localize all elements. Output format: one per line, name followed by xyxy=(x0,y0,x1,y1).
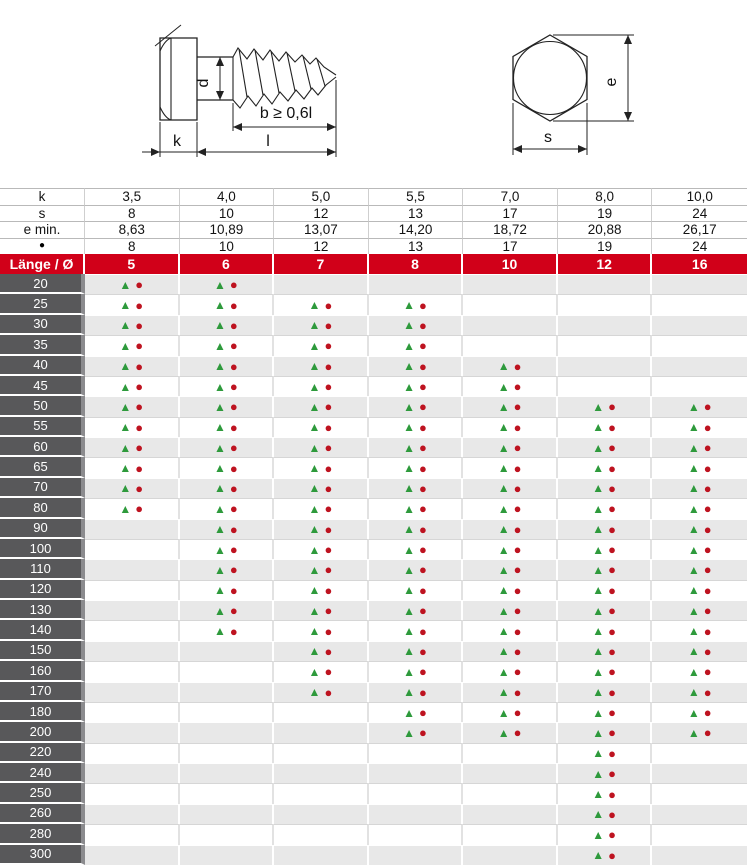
availability-cell xyxy=(85,824,180,844)
availability-cell: ▲● xyxy=(558,702,653,722)
availability-triangle-marker: ▲ xyxy=(119,503,131,515)
length-row: 240▲● xyxy=(0,763,747,783)
availability-circle-marker: ● xyxy=(608,584,616,597)
diameter-label-cell: Länge / Ø xyxy=(0,254,85,274)
availability-circle-marker: ● xyxy=(608,625,616,638)
availability-triangle-marker: ▲ xyxy=(592,788,604,800)
availability-triangle-marker: ▲ xyxy=(498,482,510,494)
availability-cell: ▲● xyxy=(274,315,369,335)
availability-cell xyxy=(180,641,275,661)
availability-cell: ▲● xyxy=(274,641,369,661)
availability-cell: ▲● xyxy=(180,519,275,539)
availability-circle-marker: ● xyxy=(230,625,238,638)
availability-circle-marker: ● xyxy=(608,563,616,576)
availability-cell: ▲● xyxy=(463,396,558,416)
availability-circle-marker: ● xyxy=(324,543,332,556)
availability-cell: ▲● xyxy=(463,519,558,539)
availability-circle-marker: ● xyxy=(608,747,616,760)
availability-cell xyxy=(85,743,180,763)
length-label-cell: 45 xyxy=(0,376,85,396)
header-value-cell: 10,0 xyxy=(652,188,747,205)
availability-circle-marker: ● xyxy=(419,726,427,739)
availability-circle-marker: ● xyxy=(419,706,427,719)
availability-cell: ▲● xyxy=(652,437,747,457)
availability-triangle-marker: ▲ xyxy=(592,482,604,494)
availability-cell: ▲● xyxy=(369,417,464,437)
availability-triangle-marker: ▲ xyxy=(214,482,226,494)
availability-circle-marker: ● xyxy=(135,339,143,352)
availability-cell: ▲● xyxy=(652,722,747,742)
availability-cell xyxy=(85,722,180,742)
availability-cell: ▲● xyxy=(85,457,180,477)
availability-circle-marker: ● xyxy=(514,706,522,719)
availability-circle-marker: ● xyxy=(135,400,143,413)
diameter-value-cell: 10 xyxy=(463,254,558,274)
availability-cell: ▲● xyxy=(463,498,558,518)
availability-cell xyxy=(463,763,558,783)
availability-circle-marker: ● xyxy=(324,502,332,515)
availability-triangle-marker: ▲ xyxy=(592,645,604,657)
availability-cell: ▲● xyxy=(558,641,653,661)
length-label-cell: 130 xyxy=(0,600,85,620)
availability-cell: ▲● xyxy=(558,763,653,783)
availability-circle-marker: ● xyxy=(704,421,712,434)
availability-circle-marker: ● xyxy=(324,686,332,699)
length-label-cell: 110 xyxy=(0,559,85,579)
availability-cell: ▲● xyxy=(274,539,369,559)
availability-circle-marker: ● xyxy=(704,441,712,454)
availability-cell: ▲● xyxy=(180,376,275,396)
availability-circle-marker: ● xyxy=(514,502,522,515)
availability-cell: ▲● xyxy=(369,682,464,702)
header-row: s8101213171924 xyxy=(0,205,747,222)
availability-triangle-marker: ▲ xyxy=(403,625,415,637)
screw-thread xyxy=(233,48,336,108)
availability-circle-marker: ● xyxy=(324,645,332,658)
availability-cell xyxy=(180,824,275,844)
availability-cell: ▲● xyxy=(274,417,369,437)
availability-triangle-marker: ▲ xyxy=(214,625,226,637)
availability-triangle-marker: ▲ xyxy=(309,482,321,494)
availability-circle-marker: ● xyxy=(419,584,427,597)
header-value-cell: 17 xyxy=(463,238,558,255)
availability-cell: ▲● xyxy=(558,580,653,600)
availability-circle-marker: ● xyxy=(419,421,427,434)
availability-circle-marker: ● xyxy=(419,360,427,373)
availability-circle-marker: ● xyxy=(514,625,522,638)
availability-triangle-marker: ▲ xyxy=(592,421,604,433)
availability-circle-marker: ● xyxy=(704,604,712,617)
availability-circle-marker: ● xyxy=(419,645,427,658)
availability-circle-marker: ● xyxy=(514,543,522,556)
length-row: 170▲●▲●▲●▲●▲● xyxy=(0,682,747,702)
availability-cell: ▲● xyxy=(180,620,275,640)
availability-cell: ▲● xyxy=(558,600,653,620)
length-row: 90▲●▲●▲●▲●▲●▲● xyxy=(0,519,747,539)
availability-cell xyxy=(652,294,747,314)
availability-circle-marker: ● xyxy=(324,339,332,352)
availability-triangle-marker: ▲ xyxy=(119,340,131,352)
length-row: 20▲●▲● xyxy=(0,274,747,294)
availability-circle-marker: ● xyxy=(608,808,616,821)
availability-circle-marker: ● xyxy=(135,462,143,475)
availability-circle-marker: ● xyxy=(230,319,238,332)
availability-cell: ▲● xyxy=(463,580,558,600)
length-label-cell: 250 xyxy=(0,783,85,803)
header-value-cell: 10 xyxy=(180,238,275,255)
availability-circle-marker: ● xyxy=(230,523,238,536)
availability-cell xyxy=(558,294,653,314)
availability-triangle-marker: ▲ xyxy=(403,503,415,515)
availability-cell: ▲● xyxy=(369,702,464,722)
dimension-lines-right xyxy=(513,35,634,155)
availability-cell xyxy=(652,783,747,803)
diameter-value-cell: 5 xyxy=(85,254,180,274)
availability-circle-marker: ● xyxy=(514,645,522,658)
availability-cell: ▲● xyxy=(652,417,747,437)
availability-triangle-marker: ▲ xyxy=(214,421,226,433)
availability-circle-marker: ● xyxy=(324,360,332,373)
availability-cell xyxy=(652,845,747,865)
availability-triangle-marker: ▲ xyxy=(119,401,131,413)
header-value-cell: 12 xyxy=(274,238,369,255)
availability-cell xyxy=(369,845,464,865)
availability-cell xyxy=(85,580,180,600)
length-row: 80▲●▲●▲●▲●▲●▲●▲● xyxy=(0,498,747,518)
availability-triangle-marker: ▲ xyxy=(498,442,510,454)
availability-circle-marker: ● xyxy=(514,400,522,413)
availability-cell: ▲● xyxy=(463,539,558,559)
length-label-cell: 50 xyxy=(0,396,85,416)
availability-cell xyxy=(274,702,369,722)
availability-triangle-marker: ▲ xyxy=(688,584,700,596)
availability-cell xyxy=(85,661,180,681)
availability-triangle-marker: ▲ xyxy=(309,584,321,596)
availability-circle-marker: ● xyxy=(230,299,238,312)
availability-triangle-marker: ▲ xyxy=(403,564,415,576)
availability-triangle-marker: ▲ xyxy=(688,462,700,474)
availability-cell: ▲● xyxy=(85,417,180,437)
availability-cell: ▲● xyxy=(558,722,653,742)
diameter-value-cell: 8 xyxy=(369,254,464,274)
availability-triangle-marker: ▲ xyxy=(498,421,510,433)
availability-triangle-marker: ▲ xyxy=(214,401,226,413)
length-label-cell: 60 xyxy=(0,437,85,457)
header-row: k3,54,05,05,57,08,010,0 xyxy=(0,188,747,205)
availability-circle-marker: ● xyxy=(608,543,616,556)
availability-circle-marker: ● xyxy=(608,421,616,434)
availability-circle-marker: ● xyxy=(608,706,616,719)
diameter-header-row: Länge / Ø5678101216 xyxy=(0,254,747,274)
availability-circle-marker: ● xyxy=(230,502,238,515)
availability-cell xyxy=(85,519,180,539)
availability-circle-marker: ● xyxy=(324,665,332,678)
length-row: 160▲●▲●▲●▲●▲● xyxy=(0,661,747,681)
availability-circle-marker: ● xyxy=(704,400,712,413)
availability-cell xyxy=(558,356,653,376)
availability-circle-marker: ● xyxy=(704,726,712,739)
availability-triangle-marker: ▲ xyxy=(498,727,510,739)
availability-triangle-marker: ▲ xyxy=(688,564,700,576)
diameter-value-cell: 6 xyxy=(180,254,275,274)
availability-triangle-marker: ▲ xyxy=(688,727,700,739)
length-label-cell: 55 xyxy=(0,417,85,437)
length-row: 250▲● xyxy=(0,783,747,803)
availability-circle-marker: ● xyxy=(324,319,332,332)
availability-triangle-marker: ▲ xyxy=(688,625,700,637)
length-row: 280▲● xyxy=(0,824,747,844)
availability-cell: ▲● xyxy=(180,294,275,314)
availability-cell xyxy=(463,845,558,865)
availability-circle-marker: ● xyxy=(230,604,238,617)
availability-circle-marker: ● xyxy=(419,400,427,413)
availability-triangle-marker: ▲ xyxy=(119,319,131,331)
length-row: 60▲●▲●▲●▲●▲●▲●▲● xyxy=(0,437,747,457)
availability-cell xyxy=(369,763,464,783)
availability-triangle-marker: ▲ xyxy=(592,829,604,841)
availability-circle-marker: ● xyxy=(135,380,143,393)
length-row: 35▲●▲●▲●▲● xyxy=(0,335,747,355)
availability-triangle-marker: ▲ xyxy=(688,401,700,413)
screw-shank xyxy=(197,57,233,100)
availability-cell: ▲● xyxy=(652,702,747,722)
availability-circle-marker: ● xyxy=(514,482,522,495)
availability-triangle-marker: ▲ xyxy=(688,605,700,617)
availability-cell: ▲● xyxy=(180,580,275,600)
header-value-cell: 19 xyxy=(558,238,653,255)
availability-cell: ▲● xyxy=(369,356,464,376)
availability-triangle-marker: ▲ xyxy=(309,442,321,454)
availability-circle-marker: ● xyxy=(608,665,616,678)
availability-cell: ▲● xyxy=(274,396,369,416)
length-row: 130▲●▲●▲●▲●▲●▲● xyxy=(0,600,747,620)
availability-cell xyxy=(274,845,369,865)
availability-cell xyxy=(652,743,747,763)
availability-cell: ▲● xyxy=(85,437,180,457)
availability-cell xyxy=(85,845,180,865)
availability-circle-marker: ● xyxy=(704,502,712,515)
availability-cell xyxy=(558,335,653,355)
dim-label-s: s xyxy=(544,129,552,146)
availability-cell: ▲● xyxy=(369,294,464,314)
availability-triangle-marker: ▲ xyxy=(214,564,226,576)
availability-cell xyxy=(85,763,180,783)
availability-cell xyxy=(652,763,747,783)
screw-side-view: d b ≥ 0,6l k l xyxy=(142,25,336,157)
screw-dimension-diagram: d b ≥ 0,6l k l e s xyxy=(0,0,747,188)
availability-cell xyxy=(85,600,180,620)
availability-cell: ▲● xyxy=(85,274,180,294)
availability-cell: ▲● xyxy=(463,722,558,742)
availability-triangle-marker: ▲ xyxy=(498,401,510,413)
availability-cell xyxy=(652,335,747,355)
availability-circle-marker: ● xyxy=(324,584,332,597)
length-row: 70▲●▲●▲●▲●▲●▲●▲● xyxy=(0,478,747,498)
availability-cell: ▲● xyxy=(85,335,180,355)
availability-cell: ▲● xyxy=(652,641,747,661)
availability-cell xyxy=(85,783,180,803)
availability-cell: ▲● xyxy=(274,376,369,396)
availability-cell: ▲● xyxy=(558,519,653,539)
availability-cell: ▲● xyxy=(369,315,464,335)
availability-circle-marker: ● xyxy=(324,441,332,454)
availability-triangle-marker: ▲ xyxy=(309,421,321,433)
length-row: 120▲●▲●▲●▲●▲●▲● xyxy=(0,580,747,600)
availability-cell xyxy=(85,804,180,824)
availability-cell xyxy=(652,356,747,376)
availability-cell: ▲● xyxy=(652,457,747,477)
availability-cell: ▲● xyxy=(463,559,558,579)
availability-circle-marker: ● xyxy=(514,686,522,699)
length-row: 25▲●▲●▲●▲● xyxy=(0,294,747,314)
availability-circle-marker: ● xyxy=(419,339,427,352)
availability-triangle-marker: ▲ xyxy=(309,360,321,372)
availability-circle-marker: ● xyxy=(419,482,427,495)
availability-cell: ▲● xyxy=(180,437,275,457)
availability-circle-marker: ● xyxy=(230,278,238,291)
availability-triangle-marker: ▲ xyxy=(214,523,226,535)
availability-cell: ▲● xyxy=(274,620,369,640)
length-label-cell: 35 xyxy=(0,335,85,355)
availability-triangle-marker: ▲ xyxy=(309,340,321,352)
availability-cell xyxy=(652,376,747,396)
length-label-cell: 240 xyxy=(0,763,85,783)
availability-triangle-marker: ▲ xyxy=(498,686,510,698)
availability-triangle-marker: ▲ xyxy=(403,605,415,617)
availability-cell: ▲● xyxy=(369,539,464,559)
availability-triangle-marker: ▲ xyxy=(309,299,321,311)
header-value-cell: 13 xyxy=(369,238,464,255)
availability-cell: ▲● xyxy=(463,478,558,498)
availability-cell xyxy=(463,743,558,763)
availability-circle-marker: ● xyxy=(608,604,616,617)
availability-cell: ▲● xyxy=(274,356,369,376)
technical-drawing: d b ≥ 0,6l k l e s xyxy=(0,0,747,188)
availability-cell xyxy=(369,804,464,824)
length-label-cell: 170 xyxy=(0,682,85,702)
availability-cell: ▲● xyxy=(652,580,747,600)
availability-cell xyxy=(463,294,558,314)
availability-triangle-marker: ▲ xyxy=(498,544,510,556)
availability-cell xyxy=(180,722,275,742)
availability-triangle-marker: ▲ xyxy=(688,482,700,494)
availability-cell: ▲● xyxy=(463,437,558,457)
availability-circle-marker: ● xyxy=(608,726,616,739)
availability-triangle-marker: ▲ xyxy=(592,686,604,698)
availability-cell xyxy=(85,641,180,661)
availability-triangle-marker: ▲ xyxy=(592,808,604,820)
availability-cell: ▲● xyxy=(274,478,369,498)
availability-cell: ▲● xyxy=(180,539,275,559)
availability-cell: ▲● xyxy=(369,641,464,661)
availability-cell: ▲● xyxy=(369,437,464,457)
availability-triangle-marker: ▲ xyxy=(592,727,604,739)
availability-circle-marker: ● xyxy=(324,523,332,536)
length-row: 40▲●▲●▲●▲●▲● xyxy=(0,356,747,376)
availability-circle-marker: ● xyxy=(514,462,522,475)
availability-circle-marker: ● xyxy=(135,441,143,454)
availability-cell: ▲● xyxy=(558,478,653,498)
availability-circle-marker: ● xyxy=(704,462,712,475)
availability-triangle-marker: ▲ xyxy=(309,605,321,617)
availability-circle-marker: ● xyxy=(419,462,427,475)
availability-circle-marker: ● xyxy=(135,502,143,515)
header-value-cell: 13,07 xyxy=(274,221,369,238)
availability-circle-marker: ● xyxy=(608,828,616,841)
availability-cell: ▲● xyxy=(558,783,653,803)
length-row: 150▲●▲●▲●▲●▲● xyxy=(0,641,747,661)
availability-triangle-marker: ▲ xyxy=(403,401,415,413)
availability-circle-marker: ● xyxy=(514,604,522,617)
availability-circle-marker: ● xyxy=(135,360,143,373)
availability-circle-marker: ● xyxy=(608,788,616,801)
availability-triangle-marker: ▲ xyxy=(214,584,226,596)
availability-cell: ▲● xyxy=(558,845,653,865)
availability-circle-marker: ● xyxy=(135,482,143,495)
dim-label-l: l xyxy=(266,133,270,150)
screw-head-outline xyxy=(155,25,197,120)
header-value-cell: 26,17 xyxy=(652,221,747,238)
availability-triangle-marker: ▲ xyxy=(309,462,321,474)
hex-head-top-view: e s xyxy=(513,35,634,155)
availability-triangle-marker: ▲ xyxy=(688,707,700,719)
availability-cell: ▲● xyxy=(369,722,464,742)
availability-cell xyxy=(274,824,369,844)
availability-cell: ▲● xyxy=(180,559,275,579)
availability-triangle-marker: ▲ xyxy=(309,503,321,515)
availability-triangle-marker: ▲ xyxy=(498,645,510,657)
length-label-cell: 140 xyxy=(0,620,85,640)
availability-cell: ▲● xyxy=(558,396,653,416)
length-label-cell: 25 xyxy=(0,294,85,314)
availability-circle-marker: ● xyxy=(419,299,427,312)
availability-cell xyxy=(463,783,558,803)
availability-cell xyxy=(652,274,747,294)
availability-triangle-marker: ▲ xyxy=(309,319,321,331)
availability-cell: ▲● xyxy=(558,620,653,640)
availability-circle-marker: ● xyxy=(704,563,712,576)
length-row: 45▲●▲●▲●▲●▲● xyxy=(0,376,747,396)
availability-triangle-marker: ▲ xyxy=(592,503,604,515)
length-label-cell: 280 xyxy=(0,824,85,844)
availability-cell: ▲● xyxy=(274,580,369,600)
availability-cell xyxy=(180,783,275,803)
availability-triangle-marker: ▲ xyxy=(403,584,415,596)
availability-triangle-marker: ▲ xyxy=(403,727,415,739)
availability-triangle-marker: ▲ xyxy=(403,645,415,657)
availability-triangle-marker: ▲ xyxy=(309,544,321,556)
availability-cell: ▲● xyxy=(369,600,464,620)
header-label-cell: s xyxy=(0,205,85,222)
availability-cell: ▲● xyxy=(652,539,747,559)
availability-cell: ▲● xyxy=(463,682,558,702)
availability-cell xyxy=(180,682,275,702)
availability-triangle-marker: ▲ xyxy=(498,625,510,637)
availability-triangle-marker: ▲ xyxy=(592,544,604,556)
availability-cell: ▲● xyxy=(274,559,369,579)
availability-cell xyxy=(369,274,464,294)
availability-triangle-marker: ▲ xyxy=(214,279,226,291)
availability-circle-marker: ● xyxy=(324,400,332,413)
length-label-cell: 70 xyxy=(0,478,85,498)
availability-circle-marker: ● xyxy=(419,502,427,515)
availability-triangle-marker: ▲ xyxy=(592,442,604,454)
availability-circle-marker: ● xyxy=(230,584,238,597)
availability-cell: ▲● xyxy=(558,661,653,681)
availability-circle-marker: ● xyxy=(419,441,427,454)
availability-cell: ▲● xyxy=(85,478,180,498)
availability-triangle-marker: ▲ xyxy=(688,442,700,454)
